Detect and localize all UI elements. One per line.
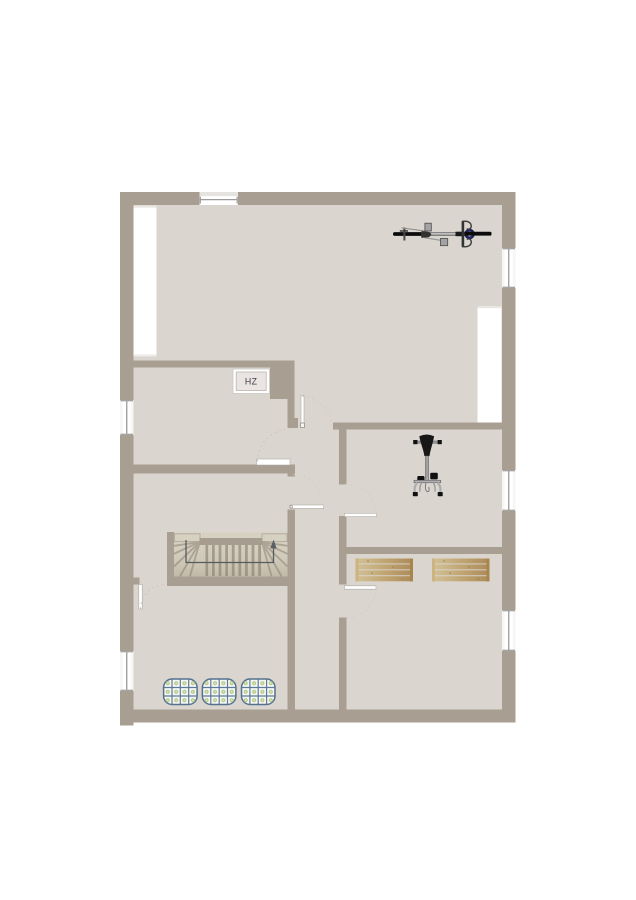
svg-text:HZ: HZ: [245, 377, 258, 387]
